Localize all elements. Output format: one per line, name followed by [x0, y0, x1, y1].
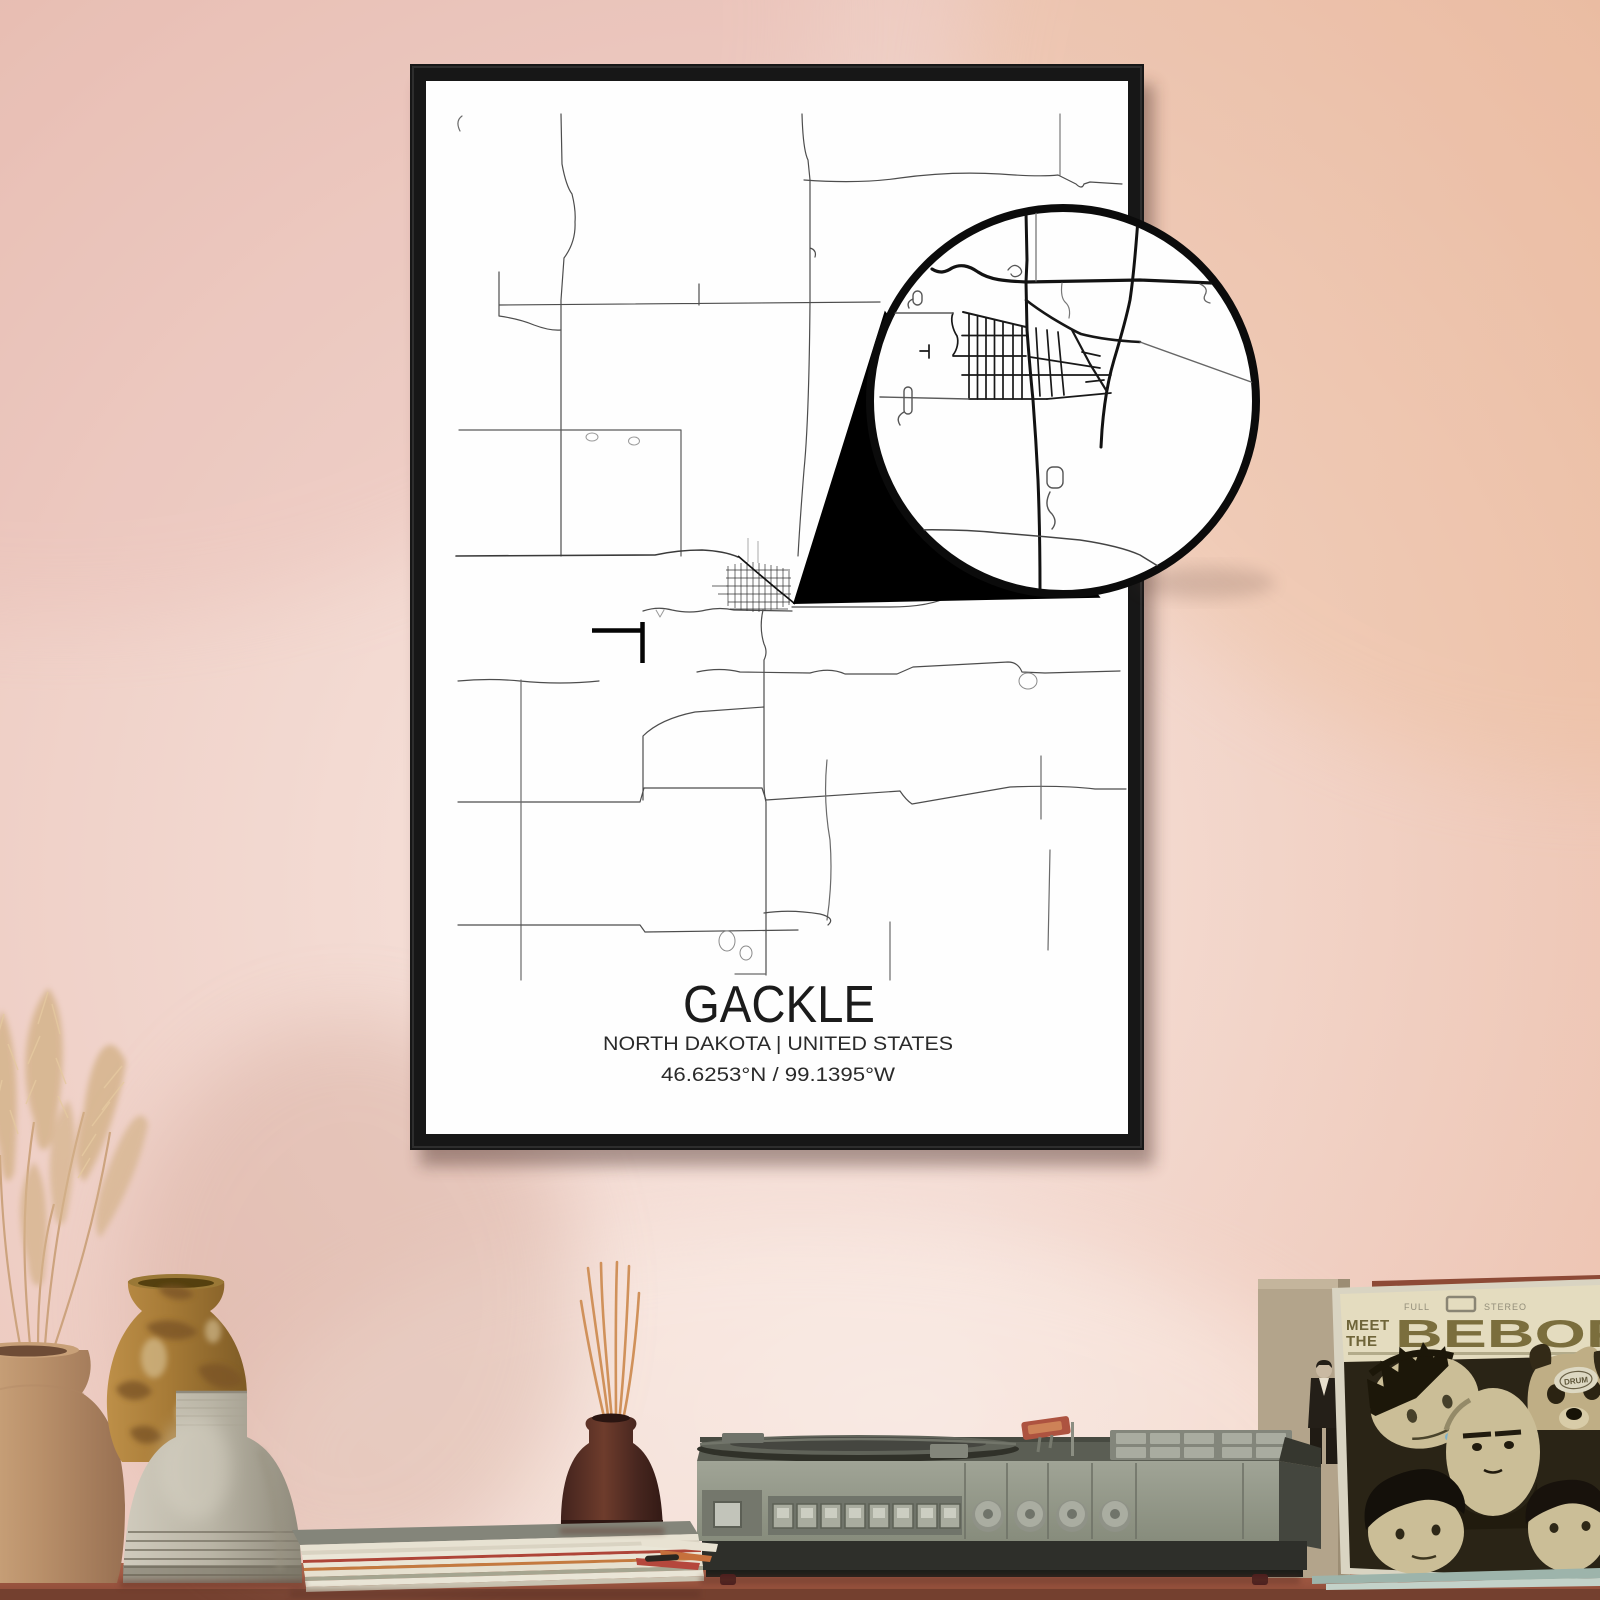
svg-text:THE: THE [1346, 1333, 1378, 1350]
svg-text:NORTH DAKOTA | UNITED STATES: NORTH DAKOTA | UNITED STATES [603, 1034, 953, 1055]
svg-text:46.6253°N / 99.1395°W: 46.6253°N / 99.1395°W [661, 1065, 895, 1086]
svg-text:MEET: MEET [1346, 1317, 1390, 1334]
svg-text:STEREO: STEREO [1484, 1302, 1527, 1312]
svg-text:FULL: FULL [1404, 1302, 1430, 1312]
svg-text:GACKLE: GACKLE [683, 976, 875, 1034]
